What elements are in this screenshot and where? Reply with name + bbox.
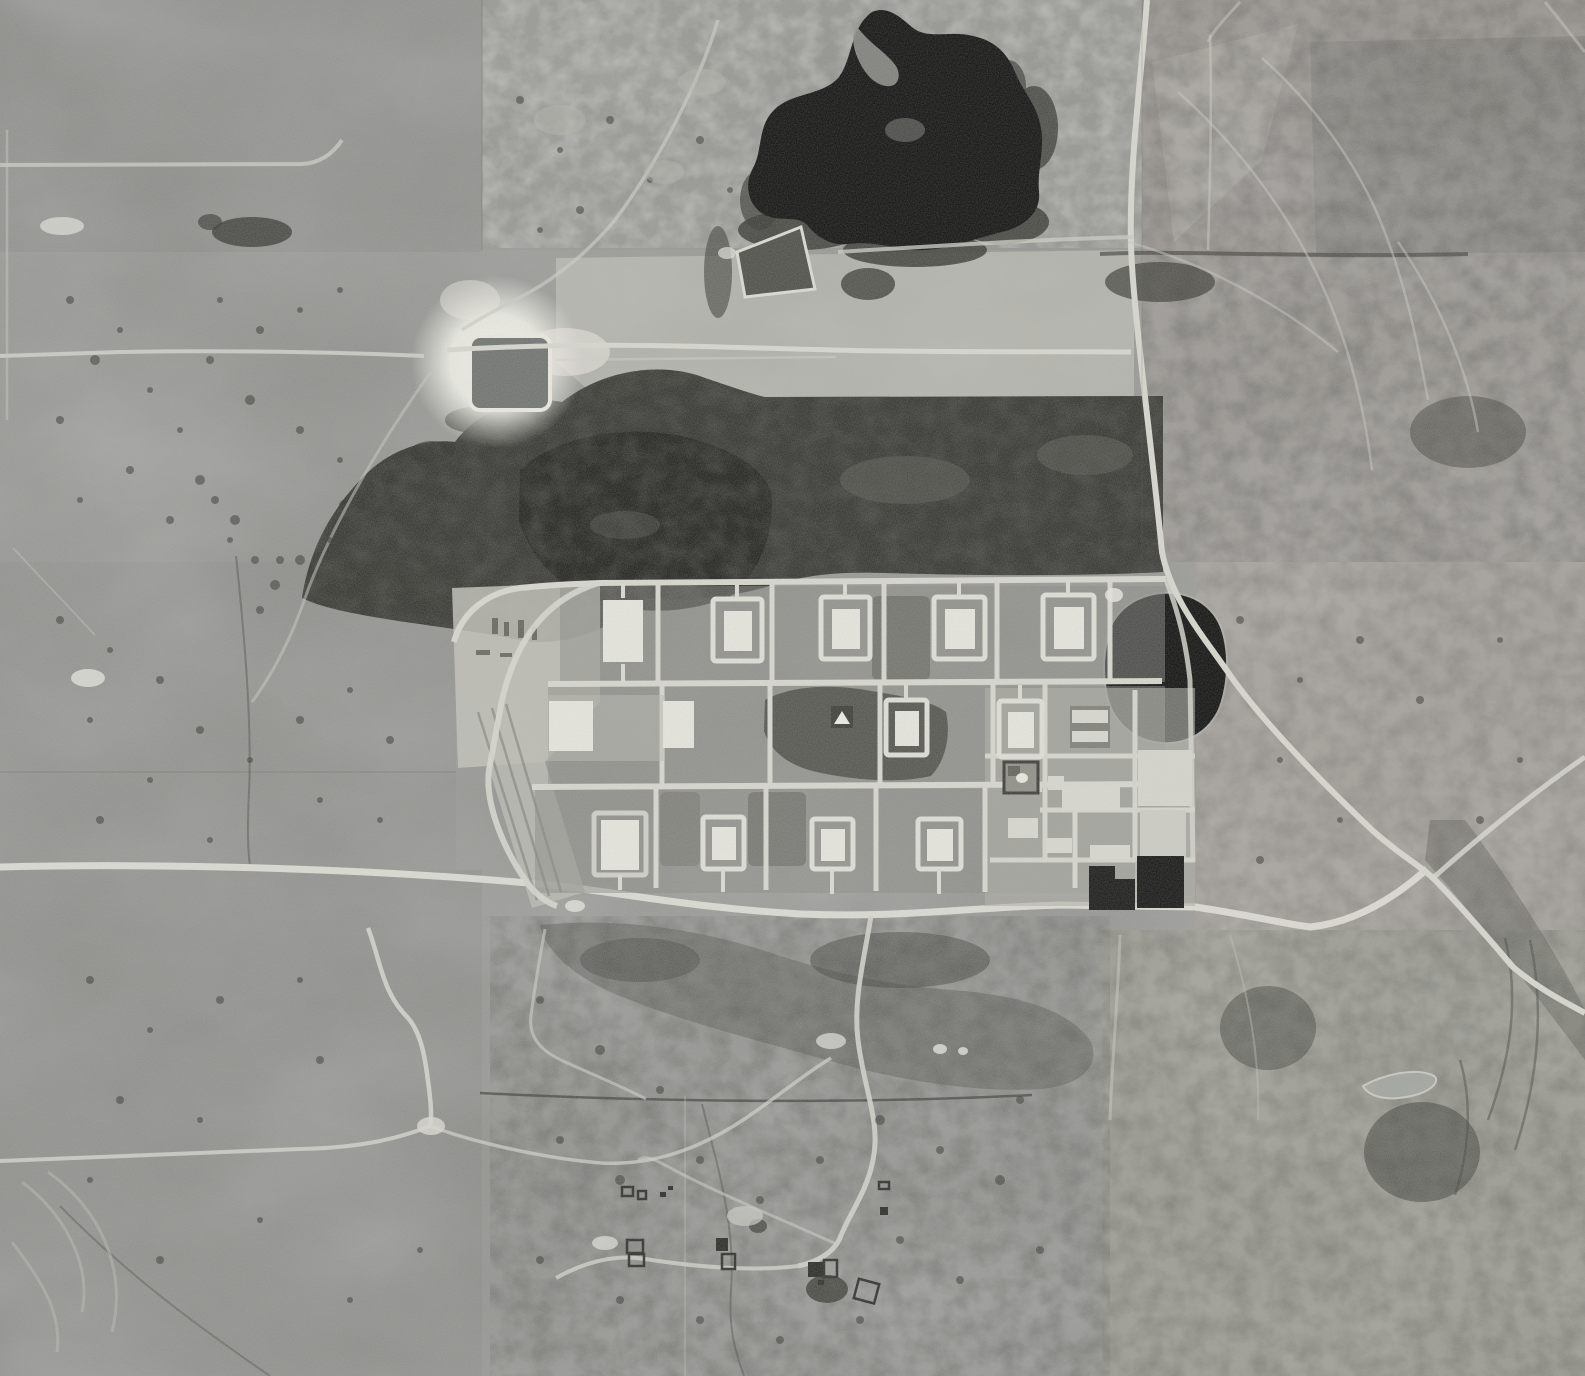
aerial-photo-canvas <box>0 0 1585 1376</box>
aerial-photograph <box>0 0 1585 1376</box>
film-grain <box>0 0 1585 1376</box>
